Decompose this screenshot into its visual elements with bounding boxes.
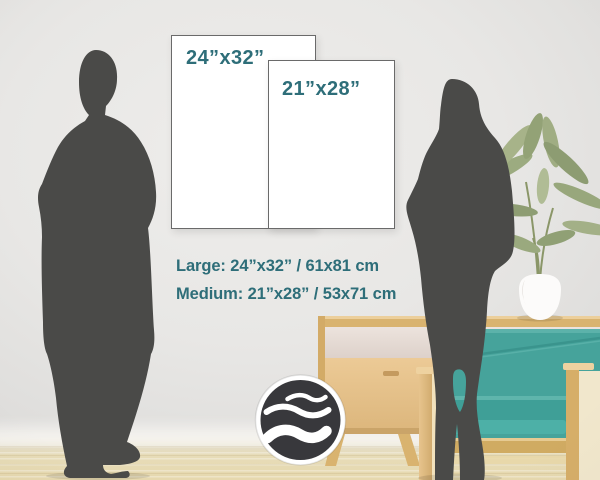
brand-logo xyxy=(0,0,600,480)
size-guide-scene: 24”x32” 21”x28” Large: 24”x32” / 61x81 c… xyxy=(0,0,600,480)
wave-logo-icon xyxy=(256,375,346,465)
